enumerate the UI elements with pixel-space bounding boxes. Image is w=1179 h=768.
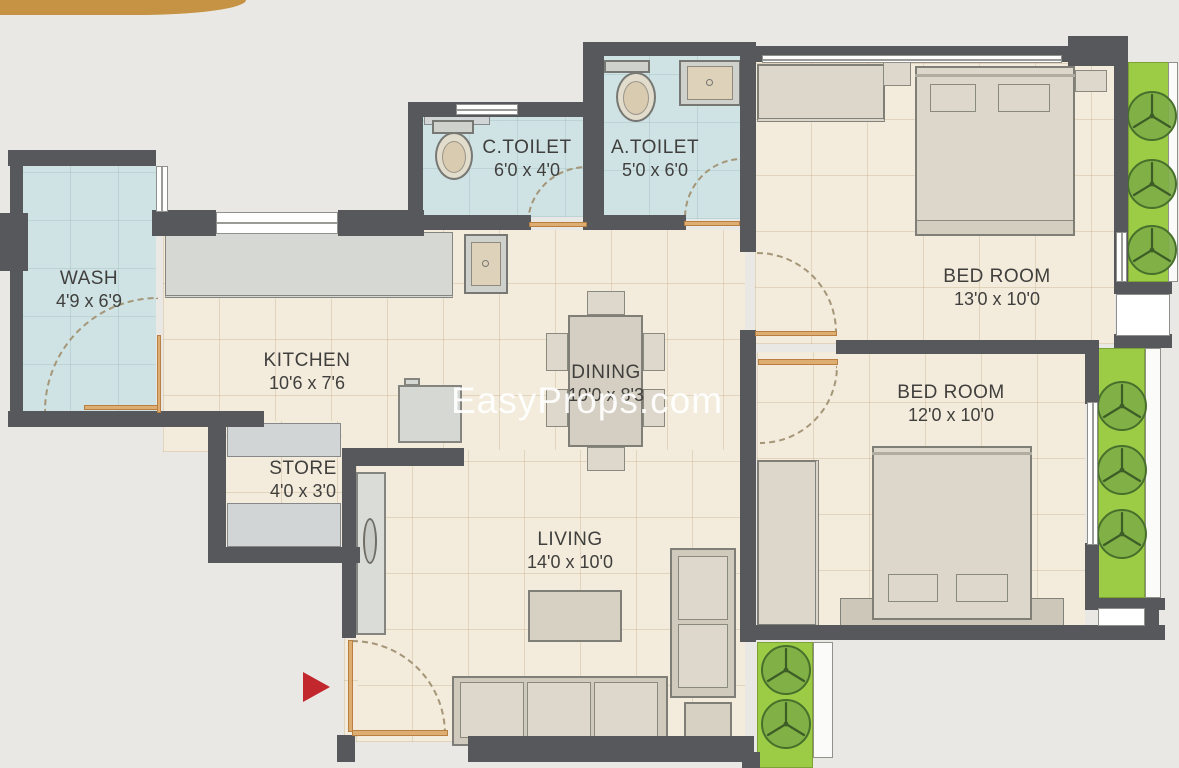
bed-headboard: [872, 452, 1032, 455]
tree-icon: [1124, 88, 1179, 144]
sofa-cushion: [678, 624, 728, 688]
wall-segment: [583, 42, 755, 56]
wall-segment: [468, 736, 754, 762]
balcony-3-railing: [813, 642, 833, 758]
atoilet-door: [684, 221, 740, 226]
sink-drain: [706, 79, 713, 86]
pillow: [956, 574, 1008, 602]
wall-segment: [740, 330, 756, 642]
window: [456, 104, 518, 115]
tree-icon: [1124, 156, 1179, 212]
wall-segment: [1085, 340, 1099, 404]
room-label-atoilet: A.TOILET 5'0 x 6'0: [575, 137, 735, 181]
room-dims: 10'6 x 7'6: [227, 372, 387, 394]
store-shelf: [227, 423, 341, 457]
bedroom1-door: [755, 331, 837, 336]
coffee-table: [528, 590, 622, 642]
room-dims: 12'0 x 10'0: [871, 404, 1031, 426]
window: [1087, 402, 1098, 545]
sofa-cushion: [527, 682, 591, 738]
room-dims: 4'0 x 3'0: [223, 480, 383, 502]
nightstand: [883, 62, 911, 86]
wall-segment: [740, 42, 756, 252]
wall-segment: [1085, 543, 1099, 602]
room-label-store: STORE 4'0 x 3'0: [223, 458, 383, 502]
sofa-cushion: [678, 556, 728, 620]
ctoilet-door: [529, 222, 587, 227]
window-box: [1116, 294, 1170, 336]
window: [762, 55, 1062, 63]
floor-plan: WASH 4'9 x 6'9 KITCHEN 10'6 x 7'6 STORE …: [0, 0, 1179, 768]
bedroom2-door: [758, 359, 838, 365]
room-label-kitchen: KITCHEN 10'6 x 7'6: [227, 350, 387, 394]
wall-segment: [836, 340, 1090, 354]
sofa-cushion: [460, 682, 524, 738]
store-shelf: [227, 503, 341, 547]
wall-segment: [8, 150, 156, 166]
pillow: [888, 574, 938, 602]
nightstand: [1075, 70, 1107, 92]
window: [216, 212, 338, 234]
room-name: STORE: [223, 458, 383, 480]
tv-icon: [363, 518, 377, 564]
toilet-bowl-inner: [623, 81, 649, 115]
wall-segment: [152, 210, 216, 236]
wall-segment: [421, 215, 531, 230]
room-name: LIVING: [490, 529, 650, 551]
tree-icon: [758, 696, 814, 752]
entrance-arrow-icon: [303, 672, 330, 702]
dining-chair: [587, 291, 625, 315]
wall-segment: [337, 735, 355, 762]
window-box: [1098, 608, 1145, 626]
room-label-wash: WASH 4'9 x 6'9: [9, 268, 169, 312]
tree-icon: [1094, 442, 1150, 498]
wall-segment: [208, 547, 360, 563]
kitchen-counter: [165, 232, 453, 298]
sink-drain: [482, 260, 489, 267]
wall-segment: [408, 104, 423, 230]
room-label-bedroom2: BED ROOM 12'0 x 10'0: [871, 382, 1031, 426]
bed-foot-fold: [917, 220, 1073, 234]
entrance-door-frame: [348, 640, 353, 732]
room-name: A.TOILET: [575, 137, 735, 159]
wall-pillar: [0, 213, 28, 271]
room-dims: 5'0 x 6'0: [575, 159, 735, 181]
wash-door: [84, 405, 160, 410]
sofa-cushion: [594, 682, 658, 738]
wardrobe: [757, 64, 885, 122]
banner-decoration: [0, 0, 246, 15]
window: [1116, 232, 1127, 282]
watermark: EasyProps.com: [407, 380, 767, 422]
tree-icon: [1094, 506, 1150, 562]
room-label-living: LIVING 14'0 x 10'0: [490, 529, 650, 573]
wash-door-frame: [157, 335, 161, 413]
window: [156, 166, 168, 212]
wall-segment: [1114, 282, 1172, 294]
room-name: BED ROOM: [917, 266, 1077, 288]
room-dims: 13'0 x 10'0: [917, 288, 1077, 310]
dining-chair: [587, 447, 625, 471]
wall-segment: [590, 215, 686, 230]
tree-icon: [758, 642, 814, 698]
wall-segment: [745, 625, 1090, 640]
pillow: [930, 84, 976, 112]
room-name: BED ROOM: [871, 382, 1031, 404]
wardrobe: [757, 460, 819, 626]
room-name: WASH: [9, 268, 169, 290]
room-name: KITCHEN: [227, 350, 387, 372]
wall-segment: [583, 42, 604, 230]
wall-segment: [1114, 334, 1172, 348]
bed-headboard: [915, 74, 1075, 77]
pillow: [998, 84, 1050, 112]
room-dims: 14'0 x 10'0: [490, 551, 650, 573]
room-label-bedroom1: BED ROOM 13'0 x 10'0: [917, 266, 1077, 310]
room-dims: 4'9 x 6'9: [9, 290, 169, 312]
tree-icon: [1124, 222, 1179, 278]
entrance-door: [352, 730, 448, 736]
tree-icon: [1094, 378, 1150, 434]
wall-segment: [1145, 598, 1159, 638]
toilet-icon: [604, 60, 650, 73]
wall-stub: [742, 752, 760, 768]
